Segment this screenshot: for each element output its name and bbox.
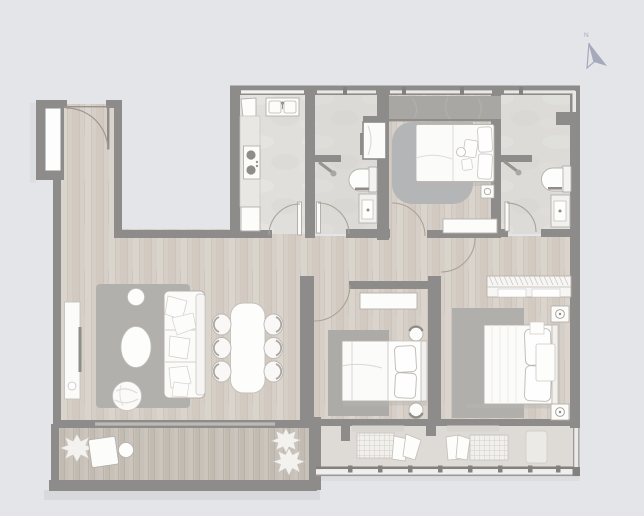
svg-text:N: N [584, 32, 589, 39]
